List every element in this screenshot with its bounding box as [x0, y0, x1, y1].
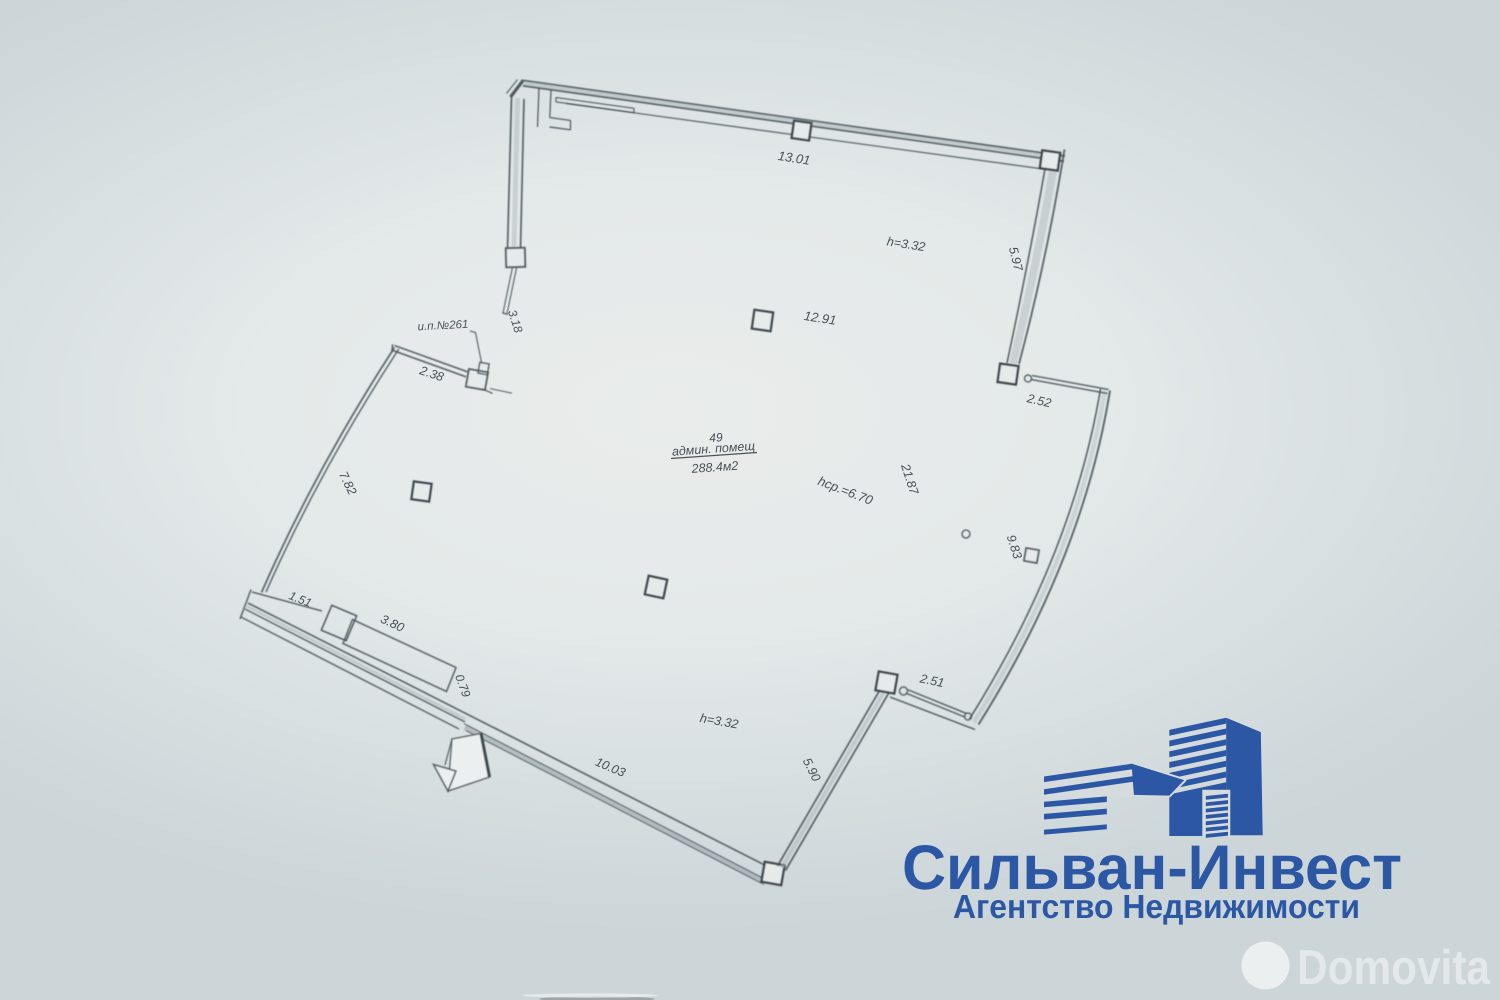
svg-text:Domovita: Domovita: [1297, 941, 1491, 995]
svg-text:Агентство Недвижимости: Агентство Недвижимости: [953, 889, 1360, 926]
